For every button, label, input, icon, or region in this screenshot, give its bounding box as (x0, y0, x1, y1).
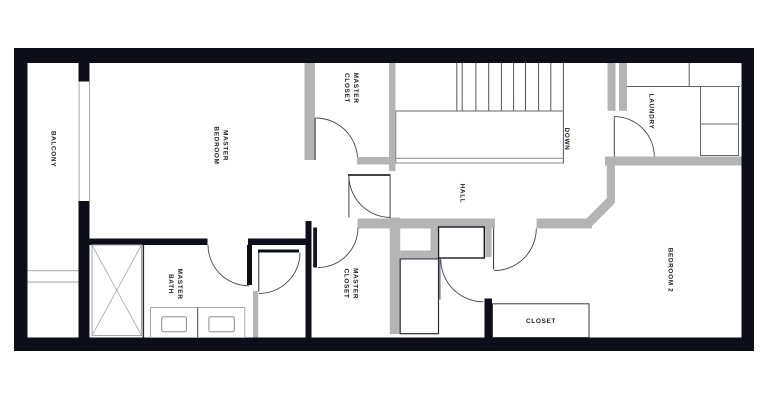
svg-text:BALCONY: BALCONY (50, 131, 57, 167)
svg-text:LAUNDRY: LAUNDRY (648, 94, 655, 130)
svg-text:BEDROOM: BEDROOM (212, 126, 219, 164)
svg-text:MASTER: MASTER (221, 130, 228, 161)
svg-text:MASTER: MASTER (352, 72, 359, 103)
svg-text:BEDROOM 2: BEDROOM 2 (667, 248, 674, 293)
svg-text:MASTER: MASTER (176, 268, 183, 299)
svg-text:HALL: HALL (459, 184, 466, 204)
svg-text:CLOSET: CLOSET (342, 269, 349, 299)
svg-text:CLOSET: CLOSET (343, 73, 350, 103)
svg-text:DOWN: DOWN (563, 128, 570, 151)
svg-text:MASTER: MASTER (351, 268, 358, 299)
svg-text:BATH: BATH (167, 274, 174, 294)
svg-text:CLOSET: CLOSET (526, 318, 556, 325)
